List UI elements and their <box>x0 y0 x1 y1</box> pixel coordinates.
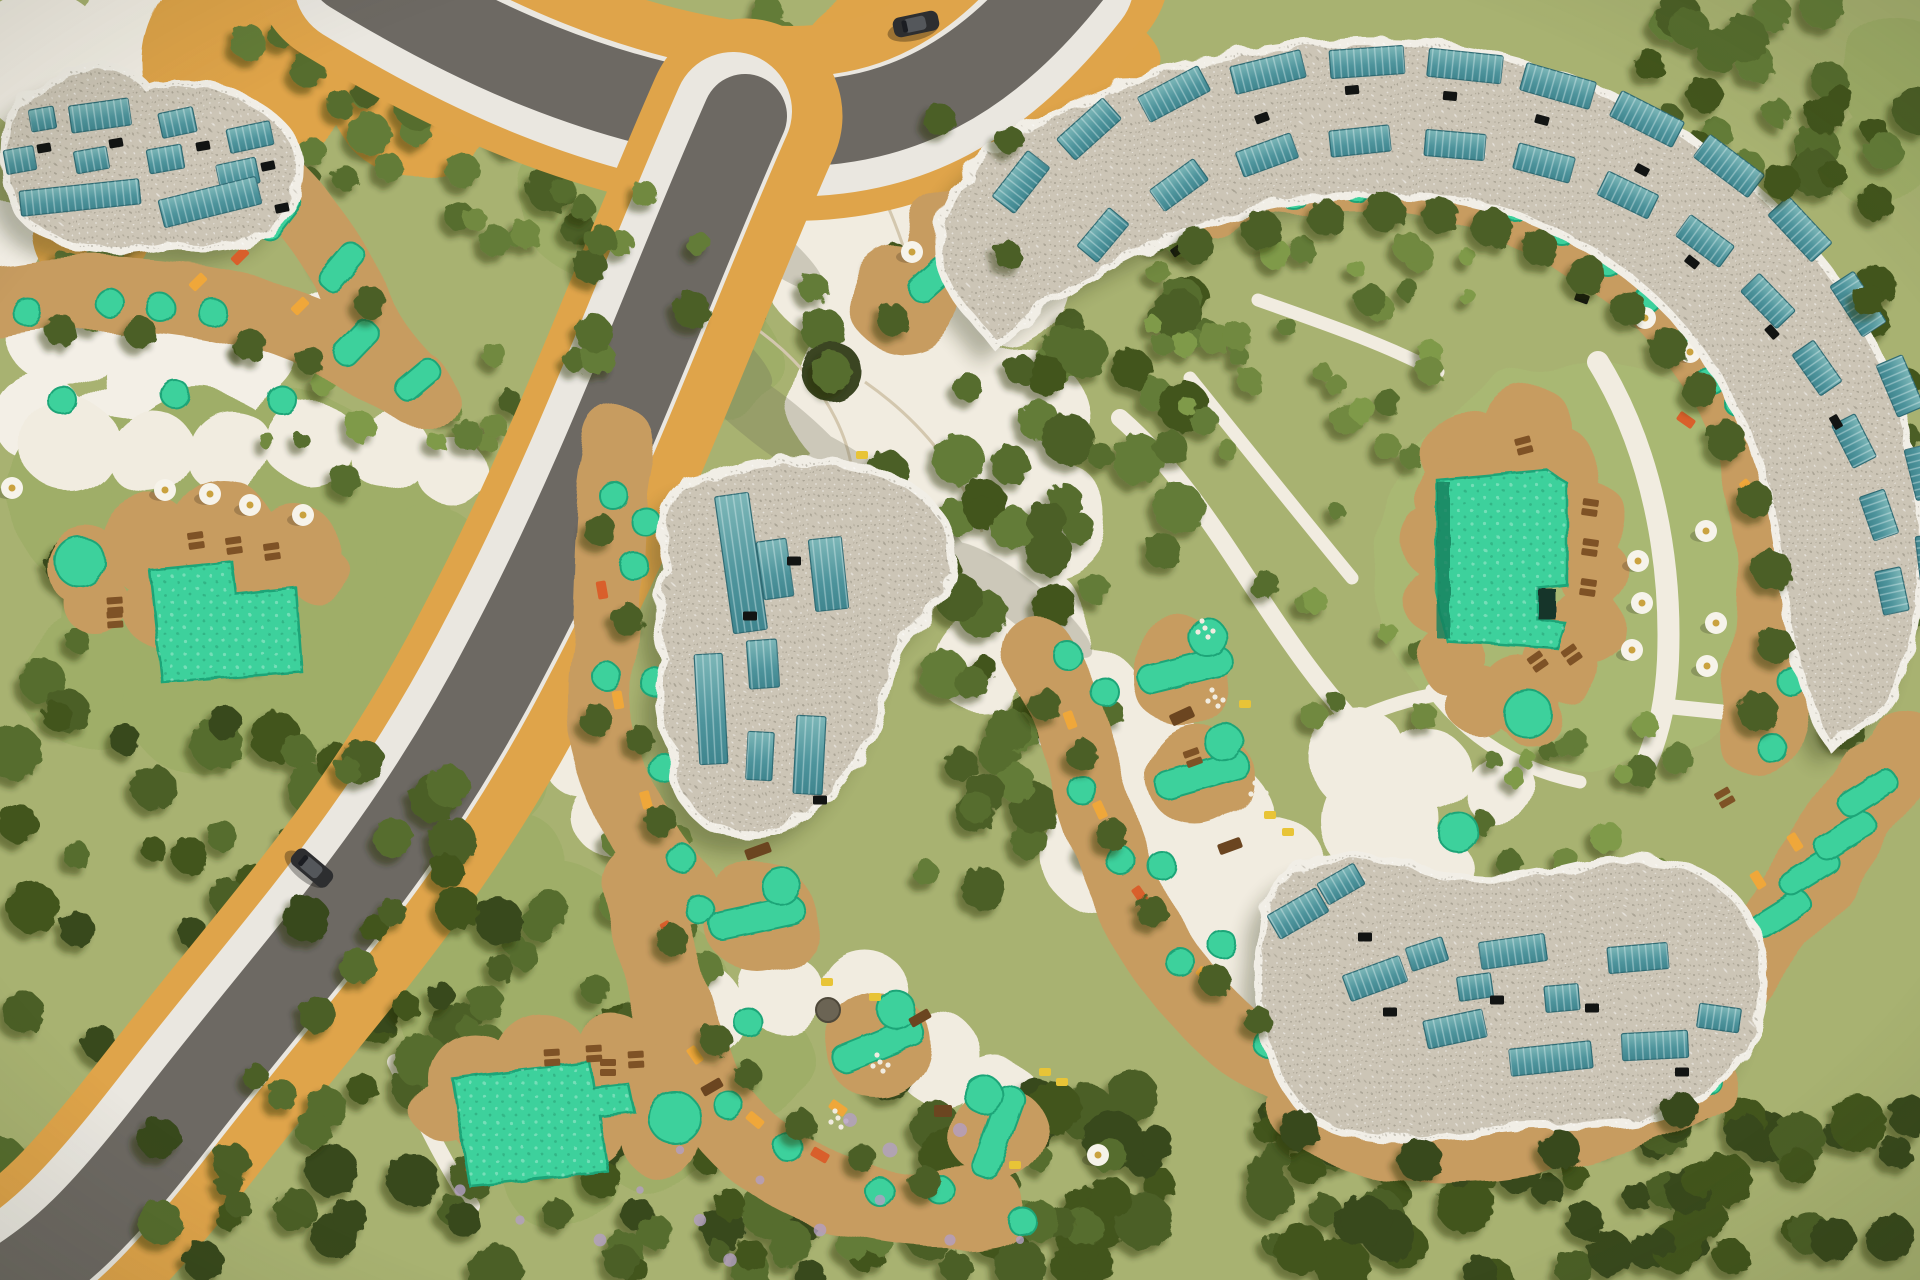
masterplan-aerial-view <box>0 0 1920 1280</box>
aerial-render-svg <box>0 0 1920 1280</box>
